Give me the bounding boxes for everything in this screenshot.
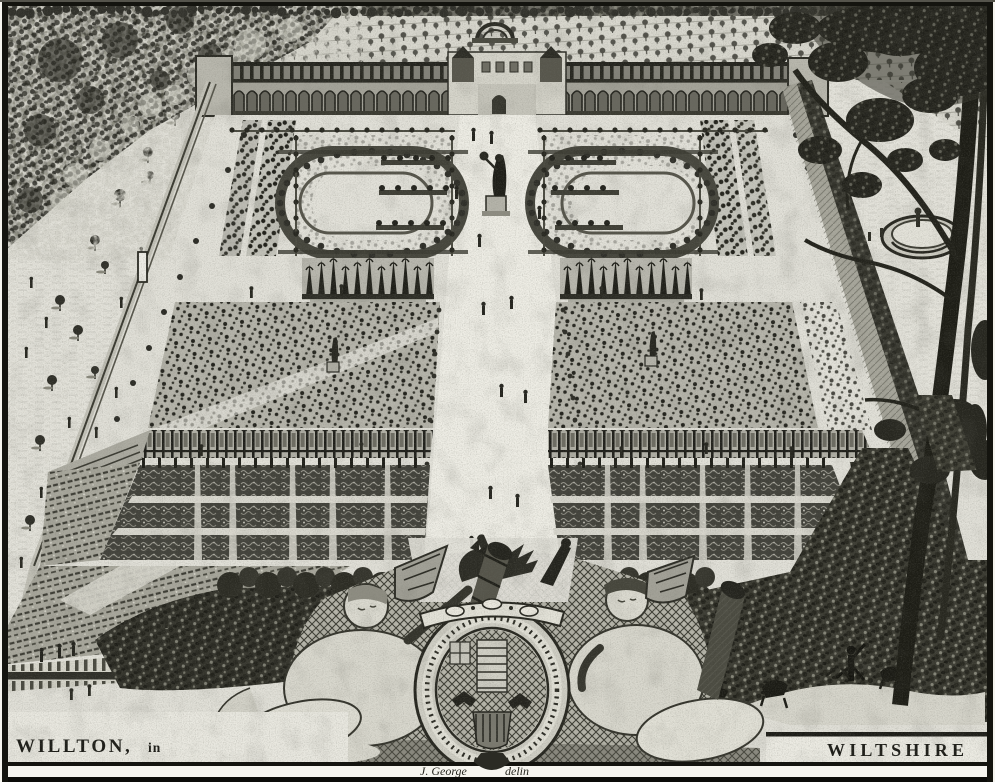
svg-text:delin: delin [505, 764, 529, 778]
svg-text:J. George: J. George [420, 764, 468, 778]
